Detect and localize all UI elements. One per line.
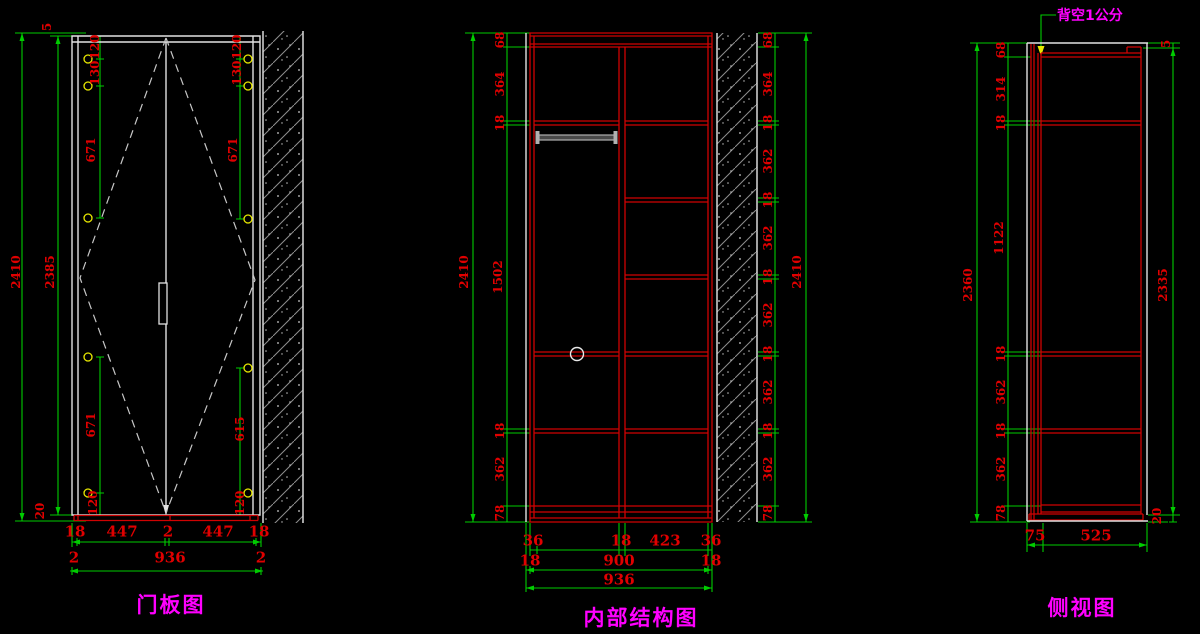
cad-linework — [0, 0, 1200, 634]
dimension-lines — [970, 15, 1180, 552]
view-title-door-panel: 门板图 — [137, 589, 206, 619]
cad-drawing-canvas: 2410238552012013067167112012013067161512… — [0, 0, 1200, 634]
door-bottom-strip — [74, 516, 258, 521]
cabinet-side-structure — [1029, 44, 1143, 520]
wall-hatch — [718, 33, 757, 522]
side-view — [970, 15, 1180, 552]
cabinet-structure — [530, 33, 712, 522]
door-swing-dashes — [80, 38, 255, 513]
view-title-side-view: 侧视图 — [1048, 592, 1117, 622]
dimension-lines — [15, 33, 263, 575]
back-gap-annotation: 背空1公分 — [1057, 5, 1123, 25]
view-title-internal-structure: 内部结构图 — [584, 602, 699, 632]
internal-structure-view — [465, 33, 812, 592]
hinge-holes — [84, 55, 252, 497]
door-panel-view — [15, 31, 303, 575]
hanging-rod — [536, 131, 618, 144]
lock-hole — [571, 348, 584, 361]
dimension-lines — [465, 33, 812, 592]
wall-hatch — [264, 31, 303, 523]
cabinet-side-outline — [1027, 43, 1148, 521]
door-handle — [159, 283, 167, 324]
